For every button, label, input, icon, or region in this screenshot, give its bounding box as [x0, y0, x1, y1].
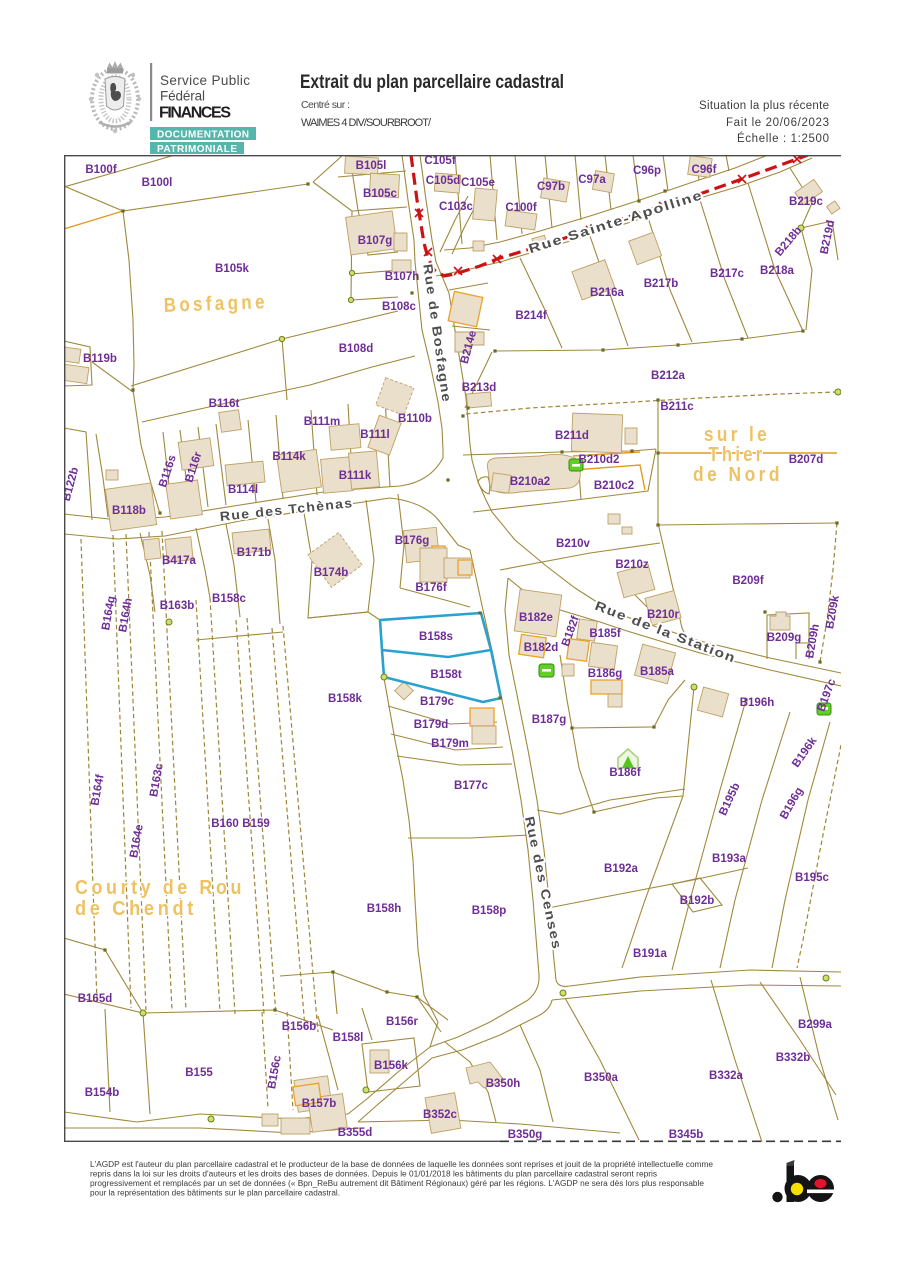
svg-text:B185a: B185a	[640, 666, 674, 678]
svg-text:Rue des Censes: Rue des Censes	[522, 815, 565, 951]
svg-text:B105l: B105l	[356, 160, 387, 172]
svg-text:B210a2: B210a2	[510, 476, 550, 488]
svg-text:B192a: B192a	[604, 863, 638, 875]
svg-text:B192b: B192b	[680, 895, 715, 907]
svg-text:B213d: B213d	[462, 382, 497, 394]
svg-text:Extrait du plan parcellaire ca: Extrait du plan parcellaire cadastral	[300, 72, 564, 93]
svg-text:B187g: B187g	[532, 714, 567, 726]
svg-text:B111m: B111m	[304, 416, 340, 428]
svg-text:B186g: B186g	[588, 668, 623, 680]
svg-text:B164e: B164e	[128, 823, 146, 858]
svg-text:Courty de Rou: Courty de Rou	[75, 877, 245, 899]
svg-text:B157b: B157b	[302, 1098, 337, 1110]
svg-text:B158c: B158c	[212, 593, 246, 605]
svg-text:L'AGDP est l'auteur du plan pa: L'AGDP est l'auteur du plan parcellaire …	[90, 1160, 714, 1169]
svg-text:sur le: sur le	[704, 424, 770, 446]
svg-text:B179m: B179m	[431, 738, 469, 750]
svg-text:repris dans la loi sur les dro: repris dans la loi sur les droits d'aute…	[90, 1170, 657, 1179]
svg-text:C100f: C100f	[505, 202, 536, 214]
svg-text:B108d: B108d	[339, 343, 374, 355]
svg-text:B116t: B116t	[209, 398, 240, 410]
svg-text:C96f: C96f	[692, 164, 717, 176]
svg-text:B210d2: B210d2	[579, 454, 620, 466]
svg-text:B156r: B156r	[386, 1016, 418, 1028]
svg-text:Centré sur :: Centré sur :	[301, 99, 350, 111]
svg-text:Service Public: Service Public	[160, 73, 250, 88]
svg-text:B218b: B218b	[773, 225, 804, 259]
svg-text:B164g: B164g	[100, 595, 118, 631]
svg-text:B179c: B179c	[420, 696, 454, 708]
svg-text:B111l: B111l	[360, 429, 389, 441]
svg-text:B165d: B165d	[78, 993, 113, 1005]
svg-text:B171b: B171b	[237, 547, 272, 559]
svg-text:B193a: B193a	[712, 853, 746, 865]
svg-text:Situation la plus récente: Situation la plus récente	[699, 100, 829, 112]
svg-text:B299a: B299a	[798, 1019, 832, 1031]
svg-text:Rue de Bosfagne: Rue de Bosfagne	[420, 263, 454, 404]
svg-text:C96p: C96p	[633, 165, 661, 177]
svg-text:B355d: B355d	[338, 1127, 373, 1139]
svg-text:de Nord: de Nord	[693, 464, 783, 486]
svg-text:Fédéral: Fédéral	[160, 89, 205, 104]
svg-text:B111k: B111k	[339, 470, 372, 482]
svg-text:B158l: B158l	[333, 1032, 364, 1044]
svg-text:progressivement et remplacés p: progressivement et remplacés par un set …	[90, 1179, 705, 1188]
svg-text:B332a: B332a	[709, 1070, 743, 1082]
svg-text:B217b: B217b	[644, 278, 679, 290]
svg-text:B158p: B158p	[472, 905, 507, 917]
svg-text:B196g: B196g	[778, 786, 806, 822]
svg-text:B186f: B186f	[609, 767, 640, 779]
svg-text:B154b: B154b	[85, 1087, 120, 1099]
svg-text:B160: B160	[211, 818, 239, 830]
svg-text:B350h: B350h	[486, 1078, 521, 1090]
svg-text:C97b: C97b	[537, 181, 565, 193]
svg-text:B100f: B100f	[85, 164, 116, 176]
svg-text:B158t: B158t	[430, 669, 461, 681]
svg-text:B210z: B210z	[615, 559, 648, 571]
svg-text:B185f: B185f	[589, 628, 620, 640]
svg-text:B158s: B158s	[419, 631, 453, 643]
svg-text:B196h: B196h	[740, 697, 775, 709]
svg-text:B212a: B212a	[651, 370, 685, 382]
svg-text:B114k: B114k	[272, 451, 306, 463]
svg-text:B350g: B350g	[508, 1129, 543, 1141]
svg-text:B174b: B174b	[314, 567, 349, 579]
svg-text:B159: B159	[242, 818, 270, 830]
svg-text:B156b: B156b	[282, 1021, 317, 1033]
svg-text:B345b: B345b	[669, 1129, 704, 1141]
svg-text:C103c: C103c	[439, 201, 473, 213]
svg-text:B209h: B209h	[804, 623, 822, 659]
svg-text:B211c: B211c	[660, 401, 694, 413]
svg-text:B155: B155	[185, 1067, 213, 1079]
svg-text:Bosfagne: Bosfagne	[163, 291, 268, 317]
svg-text:B209k: B209k	[824, 594, 842, 630]
svg-text:B332b: B332b	[776, 1052, 811, 1064]
svg-text:B176g: B176g	[395, 535, 430, 547]
svg-text:B209g: B209g	[767, 632, 802, 644]
svg-text:C105e: C105e	[461, 177, 495, 189]
svg-text:C105d: C105d	[426, 175, 461, 187]
svg-text:B156k: B156k	[374, 1060, 408, 1072]
svg-text:C97a: C97a	[578, 174, 606, 186]
svg-text:FINANCES: FINANCES	[159, 105, 231, 122]
svg-text:DOCUMENTATION: DOCUMENTATION	[157, 130, 249, 141]
svg-text:B214f: B214f	[515, 310, 546, 322]
svg-text:B352c: B352c	[423, 1109, 457, 1121]
svg-text:B417a: B417a	[162, 555, 196, 567]
svg-text:B210v: B210v	[556, 538, 590, 550]
svg-text:B107g: B107g	[358, 235, 393, 247]
svg-text:B182d: B182d	[524, 642, 559, 654]
svg-text:B350a: B350a	[584, 1072, 618, 1084]
svg-text:B207d: B207d	[789, 454, 824, 466]
svg-text:C105f: C105f	[424, 155, 455, 167]
svg-text:Rue des Tchènas: Rue des Tchènas	[219, 495, 354, 524]
svg-text:WAIMES 4 DIV/SOURBROOT/: WAIMES 4 DIV/SOURBROOT/	[301, 117, 432, 129]
svg-text:B163b: B163b	[160, 600, 195, 612]
svg-text:B105c: B105c	[363, 188, 397, 200]
svg-text:B164f: B164f	[89, 774, 106, 807]
svg-text:B100l: B100l	[142, 177, 173, 189]
svg-text:B122b: B122b	[61, 466, 82, 502]
svg-text:B179d: B179d	[414, 719, 449, 731]
svg-text:B158k: B158k	[328, 693, 362, 705]
svg-text:B210r: B210r	[647, 609, 679, 621]
svg-text:B210c2: B210c2	[594, 480, 634, 492]
svg-text:B163c: B163c	[148, 762, 166, 798]
svg-text:B114l: B114l	[228, 484, 258, 496]
svg-text:B182e: B182e	[519, 612, 553, 624]
svg-text:B218a: B218a	[760, 265, 794, 277]
svg-text:B191a: B191a	[633, 948, 667, 960]
svg-text:B105k: B105k	[215, 263, 249, 275]
svg-text:Fait le 20/06/2023: Fait le 20/06/2023	[726, 117, 829, 129]
svg-text:pour la représentation des bât: pour la représentation des bâtiments sur…	[90, 1189, 340, 1198]
svg-text:PATRIMONIALE: PATRIMONIALE	[157, 144, 237, 155]
svg-text:B209f: B209f	[732, 575, 763, 587]
svg-text:de Chendt: de Chendt	[75, 898, 197, 920]
svg-text:B217c: B217c	[710, 268, 744, 280]
svg-text:B219c: B219c	[789, 196, 823, 208]
svg-text:B110b: B110b	[398, 413, 432, 425]
svg-text:B158h: B158h	[367, 903, 402, 915]
svg-text:B119b: B119b	[83, 353, 117, 365]
svg-text:Thier: Thier	[709, 444, 766, 466]
svg-text:B156c: B156c	[266, 1054, 284, 1090]
svg-text:B197c: B197c	[816, 677, 839, 714]
svg-text:Échelle : 1:2500: Échelle : 1:2500	[737, 132, 829, 145]
svg-text:B108c: B108c	[382, 301, 416, 313]
svg-text:B211d: B211d	[555, 430, 589, 442]
svg-text:B177c: B177c	[454, 780, 488, 792]
svg-text:B176f: B176f	[415, 582, 446, 594]
svg-text:B118b: B118b	[112, 505, 146, 517]
svg-text:B107h: B107h	[385, 271, 420, 283]
svg-text:B196k: B196k	[790, 735, 820, 770]
svg-text:B164h: B164h	[117, 597, 135, 633]
svg-text:B216a: B216a	[590, 287, 624, 299]
svg-text:B195c: B195c	[795, 872, 829, 884]
